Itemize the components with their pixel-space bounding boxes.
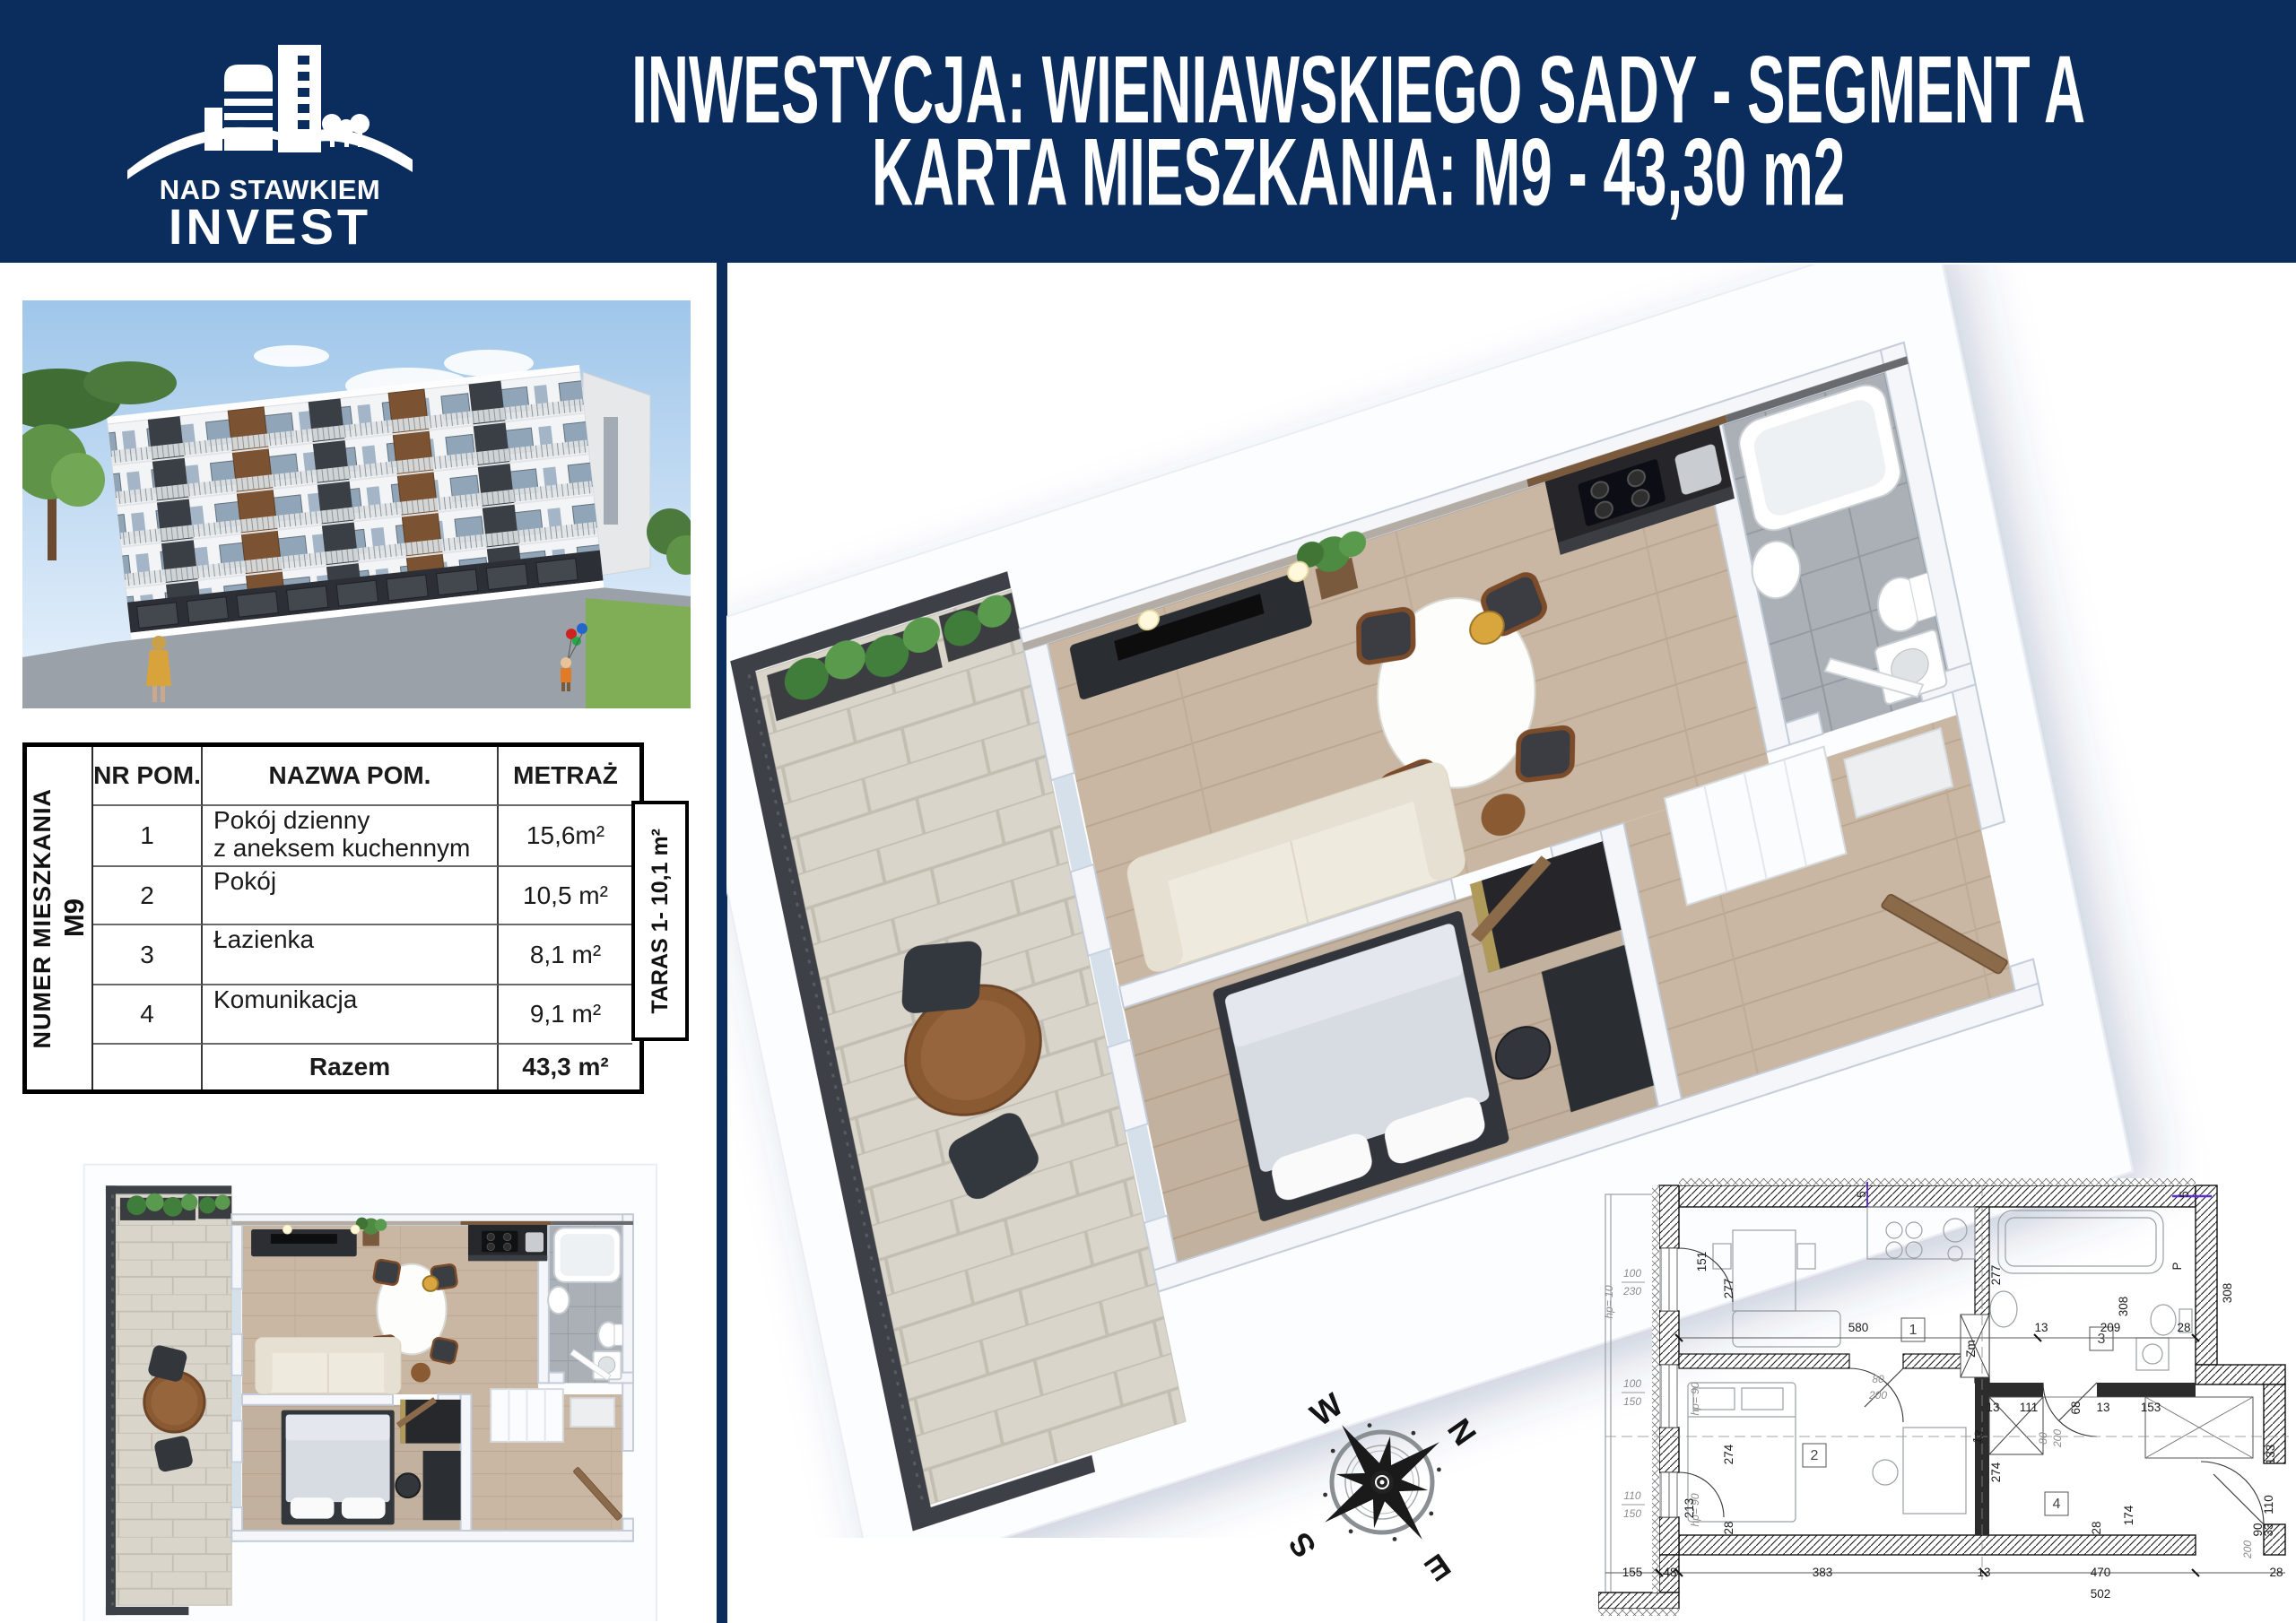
cad-room-number: 2	[1811, 1448, 1819, 1463]
room-area: 8,1 m²	[499, 925, 632, 985]
room-nr: 4	[93, 985, 203, 1045]
apartment-number-cell: NUMER MIESZKANIA M9	[27, 747, 93, 1089]
room-name: Pokój	[203, 867, 499, 925]
room-nr: 1	[93, 806, 203, 867]
logo-name-bottom: INVEST	[169, 198, 371, 253]
room-nr: 3	[93, 925, 203, 985]
cad-dimension-label: 68	[2069, 1401, 2083, 1414]
cad-dimension-label: 90	[2251, 1523, 2265, 1536]
compass-rose: WNSE	[1281, 1361, 1485, 1605]
cad-dimension-label: 308	[2221, 1283, 2234, 1304]
apartment-rooms-table: NUMER MIESZKANIA M9 NR POM. NAZWA POM. M…	[22, 742, 688, 1094]
numer-mieszkania-label: NUMER MIESZKANIA	[29, 788, 57, 1049]
room-name: Komunikacja	[203, 985, 499, 1045]
cad-dimension-label: 274	[1989, 1462, 2003, 1482]
apartment-2d-plan	[16, 1148, 687, 1621]
cad-dimension-label: 110	[2262, 1495, 2275, 1515]
room-area: 15,6m²	[499, 806, 632, 867]
cad-dimension-label: 150	[1623, 1507, 1641, 1520]
cad-dimension-label: 308	[2117, 1297, 2130, 1317]
cad-dimension-label: 13	[1986, 1401, 1999, 1414]
cad-windows	[1661, 1248, 1677, 1517]
cad-dimension-label: 28	[2090, 1521, 2103, 1534]
apartment-card-title: KARTA MIESZKANIA: M9 - 43,30 m2	[872, 117, 1845, 228]
compass-direction-letter: E	[1419, 1547, 1457, 1589]
cad-dimension-label: 5	[2178, 1191, 2191, 1198]
logo-skyline-icon	[127, 45, 413, 179]
compass-direction-letter: S	[1281, 1526, 1323, 1565]
cad-dimension-label: 28	[1722, 1521, 1735, 1534]
room-area: 10,5 m²	[499, 867, 632, 925]
room-name: Pokój dzienny z aneksem kuchennym	[203, 806, 499, 867]
cad-dimension-label: 200	[2241, 1541, 2254, 1559]
cad-dimension-label: 277	[1722, 1279, 1735, 1299]
cad-dimension-label: Zm	[1964, 1340, 1978, 1358]
taras-box: TARAS 1- 10,1 m²	[631, 801, 689, 1041]
cad-dimension-label: 502	[2091, 1587, 2111, 1601]
col-header-nazwa: NAZWA POM.	[203, 747, 499, 806]
cad-dimension-label: 111	[2020, 1401, 2039, 1414]
cad-dimension-label: 80	[2037, 1432, 2049, 1445]
cad-dimension-label: 470	[2091, 1566, 2111, 1579]
cad-dimension-label: 274	[1722, 1444, 1735, 1464]
total-empty-cell	[93, 1045, 203, 1089]
cad-dimension-label: 153	[2141, 1401, 2161, 1414]
company-logo: NAD STAWKIEM INVEST	[115, 9, 424, 253]
cad-dimension-label: 48	[1663, 1566, 1676, 1579]
cad-dimension-label: 13	[1977, 1566, 1990, 1579]
cad-dimension-label: 133	[2264, 1445, 2277, 1465]
room-area: 9,1 m²	[499, 985, 632, 1045]
cad-dimension-label: 150	[1623, 1395, 1641, 1408]
cad-floor-plan: 1 2 3 4 151100230hp= 1027758013209281001…	[1598, 1159, 2296, 1623]
grass-right	[586, 598, 691, 708]
cad-room-boxes	[1803, 1318, 2113, 1515]
total-label: Razem	[203, 1045, 499, 1089]
cad-dimension-label: 155	[1622, 1566, 1643, 1579]
cad-dimension-label: 100	[1623, 1267, 1641, 1280]
cad-dimension-label: hp= 10	[1603, 1285, 1615, 1318]
cad-dimension-label: 110	[1623, 1489, 1640, 1502]
cad-dimension-label: 100	[1623, 1377, 1641, 1390]
cad-dimension-label: hp= 90	[1689, 1382, 1701, 1415]
compass-direction-letter: N	[1440, 1411, 1483, 1452]
building-exterior-render	[22, 300, 691, 708]
taras-label: TARAS 1- 10,1 m²	[648, 829, 674, 1014]
cad-dimension-label: 28	[2269, 1566, 2283, 1579]
room-nr: 2	[93, 867, 203, 925]
cad-room-number: 4	[2053, 1497, 2061, 1512]
cad-dimension-label: 200	[2051, 1429, 2064, 1448]
cad-dimension-label: 13	[2034, 1321, 2048, 1334]
cad-dimension-label: 200	[1868, 1389, 1887, 1402]
cad-terrace	[1605, 1194, 1659, 1593]
cad-dimension-label: 80	[1872, 1373, 1884, 1385]
cad-dimension-label: 213	[1683, 1498, 1696, 1519]
cad-dimension-label: 383	[1813, 1566, 1833, 1579]
apartment-number: M9	[58, 898, 91, 937]
col-header-metraz: METRAŻ	[499, 747, 632, 806]
header-titles: INWESTYCJA: WIENIAWSKIEGO SADY - SEGMENT…	[448, 0, 2269, 263]
col-header-nr: NR POM.	[93, 747, 203, 806]
cad-dimension-label: 28	[2177, 1321, 2190, 1334]
cad-dimension-label: 13	[2096, 1401, 2109, 1414]
cad-dimension-label: 174	[2122, 1505, 2135, 1525]
cad-dimension-label: 209	[2100, 1321, 2121, 1334]
cad-dimension-label: 5	[1855, 1191, 1868, 1198]
cad-dimension-label: P	[2170, 1262, 2184, 1270]
total-area: 43,3 m²	[499, 1045, 632, 1089]
cad-dimension-label: 580	[1848, 1321, 1869, 1334]
cad-dimension-label: 151	[1695, 1252, 1709, 1272]
apartment-card-page: { "colors": {"navy": "#0b2d5e", "page_bg…	[0, 0, 2296, 1623]
header-band: NAD STAWKIEM INVEST INWESTYCJA: WIENIAWS…	[0, 0, 2296, 263]
room-name: Łazienka	[203, 925, 499, 985]
cad-room-number: 1	[1909, 1323, 1918, 1338]
cad-dimension-label: 230	[1622, 1285, 1641, 1298]
cad-interior-walls	[1679, 1207, 2196, 1535]
cad-dimension-label: 277	[1989, 1265, 2003, 1286]
